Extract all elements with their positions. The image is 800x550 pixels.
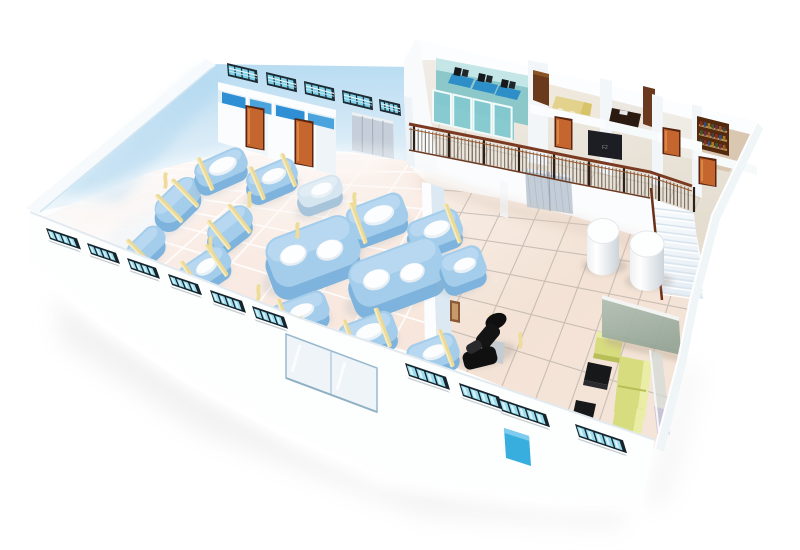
svg-text:F2: F2 [602,145,608,151]
